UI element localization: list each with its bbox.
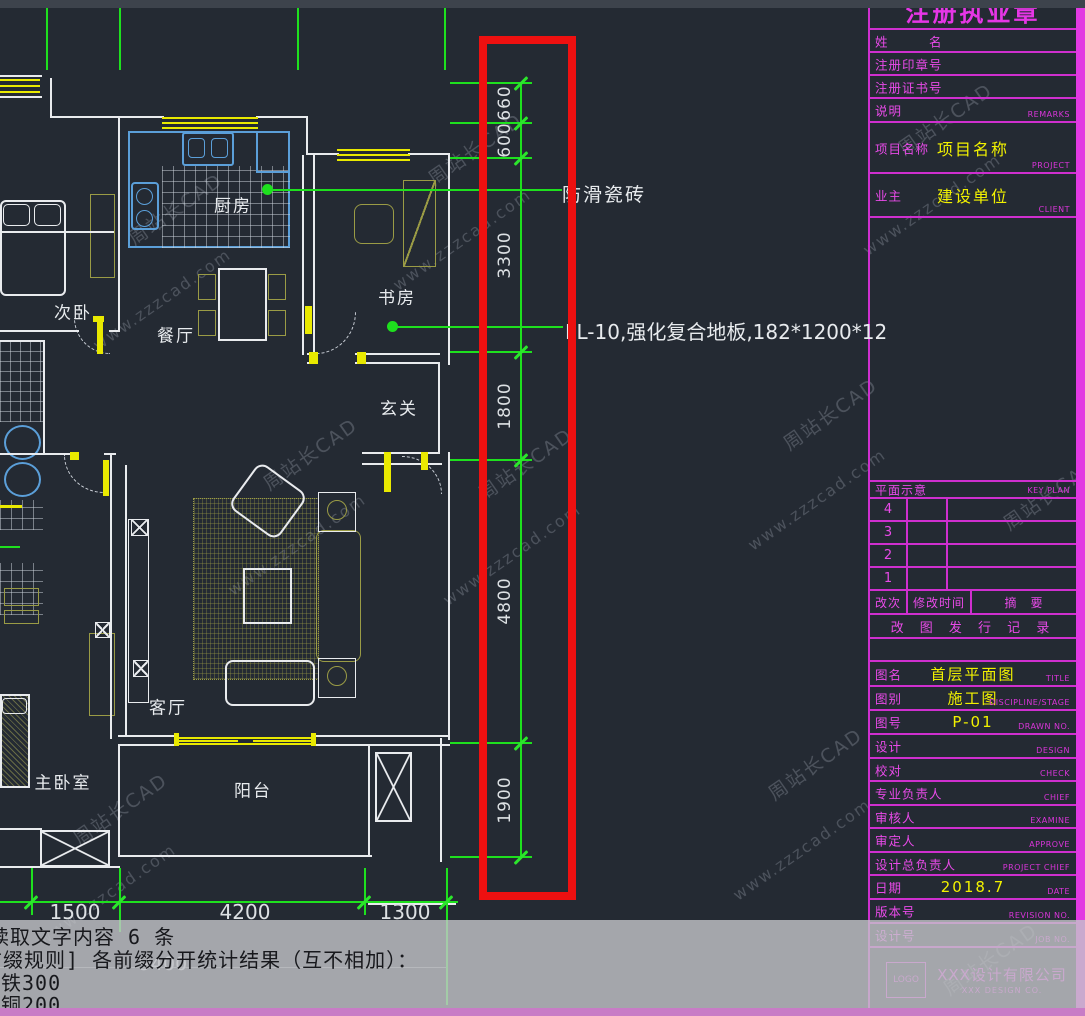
- wall-segment: [306, 116, 308, 155]
- plant-1: [327, 500, 347, 520]
- wall-segment: [0, 828, 42, 830]
- window-door-segment: [176, 740, 238, 742]
- window-door-segment: [0, 505, 22, 508]
- wall-segment: [0, 340, 44, 342]
- window-door-segment: [0, 91, 40, 93]
- keyplan-cell: [908, 522, 948, 545]
- wall-segment: [118, 744, 178, 746]
- wall-segment: [0, 96, 42, 98]
- sofa-right: [316, 530, 361, 662]
- dining-table: [218, 268, 267, 341]
- window-door-segment: [337, 154, 410, 156]
- wall-segment: [362, 452, 440, 454]
- leader-dot: [262, 184, 273, 195]
- keyplan-cell: [948, 522, 1076, 545]
- wall-segment: [125, 465, 127, 737]
- wall-segment: [440, 738, 442, 862]
- window-door-segment: [176, 743, 315, 745]
- row-dwgno: 图号P-01DRAWN NO.: [870, 711, 1076, 735]
- xbox-small-2: [95, 622, 110, 638]
- window-door-segment: [162, 127, 258, 129]
- keyplan-cell: [948, 545, 1076, 568]
- wall-segment: [368, 746, 370, 857]
- wall-segment: [306, 153, 339, 155]
- row-chief: 专业负责人CHIEF: [870, 782, 1076, 806]
- stove-burner-2: [136, 210, 153, 227]
- window-door-segment: [0, 79, 40, 81]
- window-door-segment: [311, 733, 316, 746]
- keyplan-row-4: 4: [870, 499, 908, 522]
- keyplan-row-3: 3: [870, 522, 908, 545]
- dimension-line: [297, 8, 299, 70]
- desk-chair: [354, 204, 394, 244]
- bath-tile-upper: [0, 342, 43, 422]
- watermark: 周站长CAD: [762, 721, 868, 806]
- keyplan-cell: [948, 499, 1076, 522]
- leader-dot: [387, 321, 398, 332]
- elevator-shaft: [375, 752, 412, 822]
- xbox-small-3: [133, 660, 149, 677]
- pillow-master: [2, 698, 27, 714]
- pillow-2: [34, 204, 61, 226]
- window-door-segment: [176, 737, 315, 739]
- coffee-table: [243, 568, 292, 624]
- dimension-line: [364, 868, 366, 915]
- wall-segment: [118, 735, 178, 737]
- room-label: 厨房: [214, 192, 252, 217]
- wall-segment: [109, 330, 120, 332]
- window-door-segment: [337, 149, 410, 151]
- door-arc-study: [316, 312, 356, 354]
- row-client: 业主建设单位CLIENT: [870, 174, 1076, 218]
- xbox-small-1: [131, 519, 148, 536]
- chair-3: [268, 274, 286, 300]
- row-projchief: 设计总负责人PROJECT CHIEF: [870, 853, 1076, 876]
- row-approve: 审定人APPROVE: [870, 829, 1076, 853]
- row-check: 校对CHECK: [870, 759, 1076, 782]
- row-revision-head: 改次 修改时间 摘 要: [870, 591, 1076, 615]
- row-blank: [870, 218, 1076, 482]
- column-box: [40, 830, 110, 867]
- row-project: 项目名称项目名称PROJECT: [870, 123, 1076, 174]
- wall-segment: [50, 78, 52, 118]
- room-label: 次卧: [54, 299, 92, 324]
- pillow-1: [3, 204, 30, 226]
- watermark: www.zzzcad.com: [729, 795, 874, 905]
- wall-segment: [118, 855, 372, 857]
- rev-col2: 修改时间: [908, 591, 972, 613]
- dimension-line: [444, 8, 446, 70]
- wall-segment: [313, 744, 450, 746]
- keyplan-cell: [948, 568, 1076, 591]
- toilet-2: [4, 462, 41, 497]
- row-revlog: 改 图 发 行 记 录: [870, 615, 1076, 639]
- plant-2: [327, 666, 347, 686]
- frame-edge-strip: [1076, 0, 1085, 1016]
- wall-segment: [448, 153, 450, 365]
- window-door-segment: [337, 159, 410, 161]
- stove-burner-1: [136, 188, 153, 205]
- wall-segment: [355, 362, 440, 364]
- chair-1: [198, 274, 216, 300]
- keyplan-cell: [908, 545, 948, 568]
- row-date: 日期2018.7DATE: [870, 876, 1076, 900]
- window-door-segment: [162, 117, 258, 119]
- annotation-floor: FL-10,强化复合地板,182*1200*12: [565, 316, 887, 345]
- window-door-segment: [70, 452, 79, 460]
- wall-segment: [448, 452, 450, 740]
- kitchen-counter: [256, 131, 290, 173]
- wall-segment: [313, 155, 315, 355]
- wall-segment: [313, 735, 450, 737]
- title-block: 注册执业章 姓 名 注册印章号 注册证书号 说明REMARKS 项目名称项目名称…: [868, 0, 1076, 1008]
- keyplan-table: 4 3 2 1: [870, 499, 1076, 591]
- window-door-segment: [253, 740, 315, 742]
- row-keyplan-head: 平面示意KEY PLAN: [870, 482, 1076, 499]
- bookshelf: [403, 180, 436, 267]
- row-seal: 注册印章号: [870, 53, 1076, 76]
- row-design: 设计DESIGN: [870, 735, 1076, 759]
- wall-segment: [118, 746, 120, 857]
- window-door-segment: [174, 733, 179, 746]
- console-overlay-panel: [0, 920, 1085, 1010]
- room-label: 主卧室: [35, 769, 92, 794]
- row-cert: 注册证书号: [870, 76, 1076, 99]
- window-door-segment: [162, 122, 258, 124]
- highlight-rectangle: [479, 36, 576, 900]
- appliance-1: [4, 588, 39, 606]
- wall-segment: [0, 75, 42, 77]
- row-name: 姓 名: [870, 30, 1076, 53]
- wall-segment: [438, 363, 440, 454]
- row-examine: 审核人EXAMINE: [870, 806, 1076, 829]
- room-label: 客厅: [149, 694, 187, 719]
- dimension-line: [31, 868, 33, 915]
- window-door-segment: [305, 306, 312, 334]
- sink-basin-left: [188, 138, 205, 158]
- sink-basin-right: [211, 138, 228, 158]
- wall-segment: [0, 330, 79, 332]
- bottom-magenta-strip: [0, 1008, 1085, 1016]
- window-door-segment: [0, 85, 40, 87]
- keyplan-row-2: 2: [870, 545, 908, 568]
- wall-segment: [362, 463, 442, 465]
- keyplan-row-1: 1: [870, 568, 908, 591]
- top-window-strip: [0, 0, 1085, 8]
- wall-segment: [110, 455, 112, 739]
- window-door-segment: [93, 316, 104, 322]
- rev-col3: 摘 要: [972, 591, 1076, 613]
- appliance-2: [4, 610, 39, 624]
- keyplan-cell: [908, 568, 948, 591]
- room-label: 餐厅: [157, 322, 195, 347]
- wall-segment: [256, 116, 308, 118]
- sofa-bottom: [225, 660, 315, 706]
- window-door-segment: [384, 452, 391, 492]
- window-door-segment: [103, 460, 109, 496]
- wardrobe-secondary: [90, 194, 115, 278]
- row-stage: 图别施工图DISCIPLINE/STAGE: [870, 687, 1076, 711]
- wall-segment: [302, 155, 304, 355]
- window-door-segment: [357, 352, 366, 364]
- dimension-line: [0, 546, 20, 548]
- wall-segment: [118, 116, 120, 332]
- row-blank2: [870, 639, 1076, 662]
- chair-4: [268, 310, 286, 336]
- room-label: 书房: [378, 284, 416, 309]
- window-door-segment: [97, 322, 103, 354]
- wall-segment: [0, 453, 71, 455]
- cad-viewport[interactable]: 9400 6606003300180048001900150042001300厨…: [0, 0, 1085, 1016]
- row-remarks: 说明REMARKS: [870, 99, 1076, 123]
- wall-segment: [0, 231, 114, 233]
- watermark: 周站长CAD: [777, 371, 883, 456]
- door-arc-bath: [64, 455, 104, 493]
- wall-segment: [0, 866, 120, 868]
- window-door-segment: [421, 452, 428, 470]
- wall-segment: [43, 340, 45, 455]
- wall-segment: [50, 116, 164, 118]
- wall-segment: [355, 353, 440, 355]
- keyplan-cell: [908, 499, 948, 522]
- room-label: 阳台: [234, 777, 272, 802]
- dimension-line: [119, 8, 121, 70]
- room-label: 玄关: [380, 395, 418, 420]
- wall-segment: [408, 153, 450, 155]
- chair-2: [198, 310, 216, 336]
- rev-col1: 改次: [870, 591, 908, 613]
- window-door-segment: [309, 352, 318, 364]
- row-title: 图名首层平面图TITLE: [870, 662, 1076, 687]
- dimension-line: [46, 8, 48, 70]
